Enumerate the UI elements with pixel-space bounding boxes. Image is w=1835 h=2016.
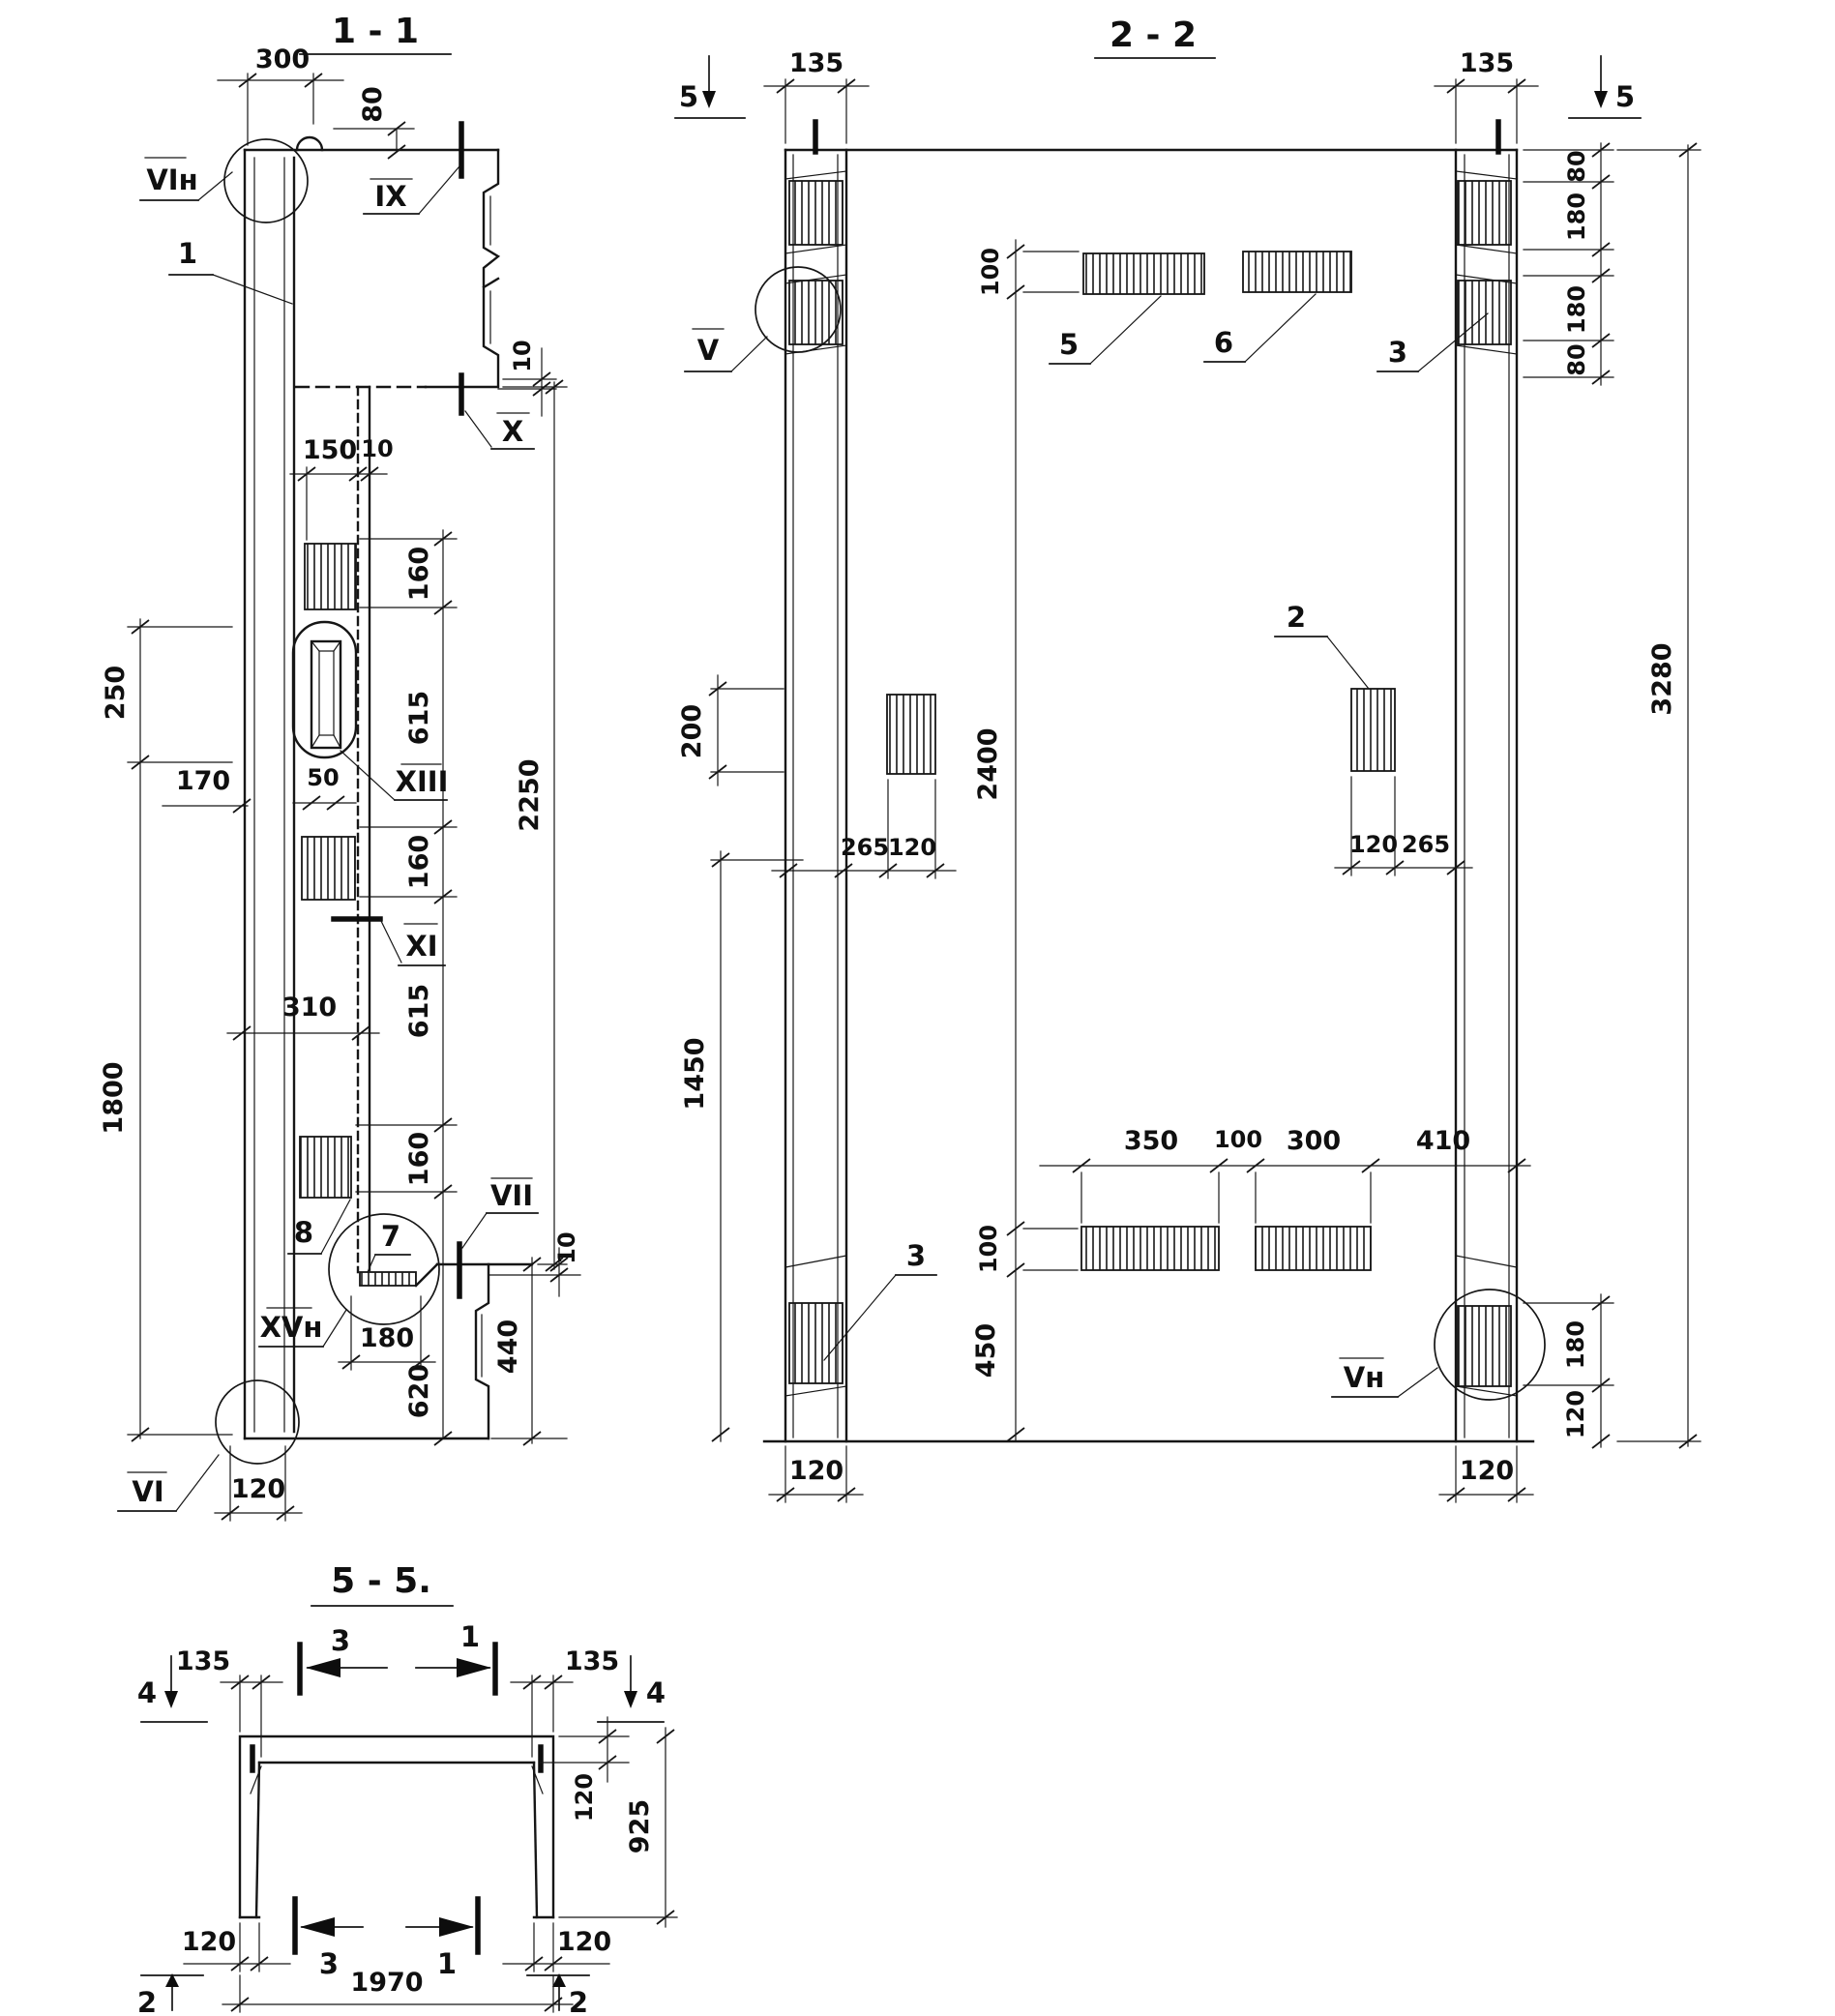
dim-1970: 1970 bbox=[222, 1968, 573, 2012]
marker-vii-label: VII bbox=[490, 1179, 533, 1212]
dim-100-label: 100 bbox=[1214, 1126, 1262, 1153]
dim-180-label: 180 bbox=[1563, 193, 1590, 241]
dim-265-label: 265 bbox=[841, 834, 889, 861]
dim-300-label: 300 bbox=[255, 44, 310, 74]
marker-vi-label: VI bbox=[132, 1475, 163, 1508]
section-1-1: 1 - 1 bbox=[99, 12, 580, 1521]
dim-160-label: 160 bbox=[404, 835, 434, 889]
dim-180-foot: 180 bbox=[339, 1296, 435, 1370]
embedded-plate-bottom-right bbox=[1256, 1227, 1371, 1270]
detail-circle-vi bbox=[216, 1380, 299, 1464]
dim-265-label: 265 bbox=[1402, 831, 1450, 858]
dim-265-120-left: 265 120 bbox=[772, 780, 956, 878]
dim-120-bottom-left: 120 bbox=[769, 1446, 863, 1502]
cut-marker-5-left: 5 bbox=[675, 56, 745, 118]
dim-120-label: 120 bbox=[231, 1474, 285, 1504]
dim-350-label: 350 bbox=[1124, 1126, 1178, 1156]
leader-8: 8 bbox=[288, 1200, 350, 1254]
dim-chain-left-1-1: 250 1800 170 bbox=[99, 619, 251, 1441]
drawing-sheet: 1 - 1 bbox=[0, 0, 1835, 2016]
cut-marker-2-left: 2 bbox=[137, 1973, 203, 2016]
leader-2-label: 2 bbox=[1287, 601, 1306, 634]
dim-135-label: 135 bbox=[565, 1646, 619, 1676]
marker-v-label: V bbox=[697, 334, 720, 367]
leader-1-label: 1 bbox=[178, 237, 197, 270]
dim-chain-center: 100 2400 100 450 bbox=[971, 240, 1079, 1441]
section-1-1-title: 1 - 1 bbox=[332, 12, 419, 51]
dim-10-head: 10 bbox=[498, 340, 556, 416]
cut-marker-1-top: 1 bbox=[416, 1620, 495, 1693]
cut-marker-2-right: 2 bbox=[527, 1973, 589, 2016]
dim-135-left-55: 135 bbox=[176, 1646, 282, 1757]
cut-marker-3-label: 3 bbox=[331, 1624, 350, 1657]
dim-chain-right-top: 80 180 180 80 bbox=[1524, 143, 1613, 385]
leader-2: 2 bbox=[1275, 601, 1369, 689]
slot-detail bbox=[293, 622, 356, 757]
dim-chain-right-1-1: 160 615 160 615 160 620 bbox=[356, 530, 457, 1445]
leader-5: 5 bbox=[1050, 296, 1161, 364]
marker-vii: VII bbox=[462, 1178, 538, 1248]
detail-7: 7 bbox=[368, 1220, 410, 1272]
leader-6-label: 6 bbox=[1214, 326, 1233, 359]
dim-10-label: 10 bbox=[553, 1231, 580, 1263]
dim-150-label: 150 bbox=[303, 435, 357, 465]
dim-80-label: 80 bbox=[1563, 343, 1590, 375]
leader-5-label: 5 bbox=[1059, 328, 1079, 361]
dim-80-label: 80 bbox=[358, 86, 388, 123]
dim-3280-label: 3280 bbox=[1647, 642, 1677, 715]
section-5-5-title: 5 - 5. bbox=[331, 1561, 431, 1601]
cut-marker-5-label: 5 bbox=[679, 80, 698, 113]
dim-250-label: 250 bbox=[101, 666, 131, 720]
cut-marker-2-label: 2 bbox=[569, 1986, 588, 2016]
dim-50-label: 50 bbox=[307, 764, 339, 791]
marker-xi: XI bbox=[380, 919, 445, 965]
dim-440-label: 440 bbox=[493, 1319, 523, 1374]
embedded-plate bbox=[302, 837, 355, 900]
lifting-hook bbox=[297, 137, 322, 150]
embedded-plate-6 bbox=[1243, 252, 1351, 292]
channel-outline bbox=[240, 1736, 553, 1917]
dim-615-label: 615 bbox=[404, 691, 434, 745]
marker-x-label: X bbox=[502, 415, 523, 448]
dim-2250: 2250 bbox=[503, 380, 567, 1271]
marker-xvn: XVн bbox=[259, 1308, 346, 1347]
dim-120-bottom-right-55: 120 bbox=[503, 1923, 611, 1972]
embedded-plate-mid-left bbox=[887, 695, 935, 774]
dim-150-10: 150 10 bbox=[290, 435, 394, 540]
dim-80-label: 80 bbox=[1563, 150, 1590, 182]
dim-120-label: 120 bbox=[888, 834, 936, 861]
dim-160-label: 160 bbox=[404, 547, 434, 601]
marker-x: X bbox=[465, 411, 534, 449]
dim-120-label: 120 bbox=[557, 1927, 611, 1957]
leader-6: 6 bbox=[1204, 294, 1316, 362]
dim-170-label: 170 bbox=[176, 766, 230, 796]
cut-marker-4-label: 4 bbox=[646, 1676, 666, 1709]
marker-ix: IX bbox=[364, 166, 459, 214]
dim-1970-label: 1970 bbox=[350, 1968, 423, 1998]
section-2-2: 2 - 2 bbox=[675, 15, 1701, 1502]
marker-vin-label: VIн bbox=[146, 163, 197, 196]
dim-180-label: 180 bbox=[1563, 285, 1590, 334]
marker-v: V bbox=[685, 329, 767, 371]
dim-310-label: 310 bbox=[282, 993, 337, 1023]
dim-50: 50 bbox=[293, 764, 356, 810]
dim-925: 925 bbox=[559, 1728, 677, 1927]
dim-120-bottom-right: 120 bbox=[1439, 1446, 1533, 1502]
dim-10-label: 10 bbox=[509, 340, 536, 371]
leader-8-label: 8 bbox=[294, 1216, 313, 1249]
embedded-plate-bottom-left bbox=[1081, 1227, 1219, 1270]
dim-135-label: 135 bbox=[1460, 48, 1514, 78]
section-2-2-title: 2 - 2 bbox=[1110, 15, 1197, 55]
embedded-plate-2 bbox=[1351, 689, 1395, 771]
cut-marker-4-label: 4 bbox=[137, 1676, 157, 1709]
leader-3-label: 3 bbox=[1388, 336, 1407, 369]
marker-xvn-label: XVн bbox=[260, 1311, 323, 1344]
dim-3280: 3280 bbox=[1617, 143, 1701, 1448]
cut-marker-3-top: 3 bbox=[300, 1624, 387, 1693]
dim-120-label: 120 bbox=[1460, 1456, 1514, 1486]
dim-300: 300 bbox=[218, 44, 343, 145]
cut-marker-1-label: 1 bbox=[460, 1620, 480, 1653]
dim-300-label: 300 bbox=[1287, 1126, 1341, 1156]
cut-marker-5-label: 5 bbox=[1615, 80, 1635, 113]
leader-3-label: 3 bbox=[906, 1239, 926, 1272]
dim-1800-label: 1800 bbox=[99, 1061, 129, 1134]
dim-200: 200 bbox=[677, 675, 784, 786]
marker-ix-label: IX bbox=[374, 180, 406, 213]
dim-180-label: 180 bbox=[360, 1323, 414, 1353]
marker-vn: Vн bbox=[1332, 1358, 1437, 1397]
marker-xiii-label: XIII bbox=[396, 765, 449, 798]
dim-120-265-right: 120 265 bbox=[1335, 777, 1472, 875]
marker-vn-label: Vн bbox=[1344, 1361, 1384, 1394]
technical-drawing: 1 - 1 bbox=[0, 0, 1835, 2016]
dim-615-label: 615 bbox=[404, 984, 434, 1038]
dim-160-label: 160 bbox=[404, 1132, 434, 1186]
dim-180-label: 180 bbox=[1562, 1320, 1589, 1369]
leader-1: 1 bbox=[169, 237, 292, 304]
marker-vi: VI bbox=[118, 1455, 219, 1511]
embedded-plate bbox=[305, 544, 356, 609]
dim-450-label: 450 bbox=[971, 1323, 1001, 1378]
embedded-plate-5 bbox=[1083, 253, 1204, 294]
dim-120-label: 120 bbox=[182, 1927, 236, 1957]
cut-marker-2-label: 2 bbox=[137, 1986, 157, 2016]
dim-120-bottom-left-55: 120 bbox=[182, 1923, 290, 1972]
dim-100-label: 100 bbox=[977, 248, 1004, 296]
dim-120-bottom-1-1: 120 bbox=[215, 1446, 302, 1521]
dim-925-label: 925 bbox=[625, 1799, 655, 1853]
dim-135-label: 135 bbox=[176, 1646, 230, 1676]
dim-10-label: 10 bbox=[361, 435, 393, 462]
dim-80-top: 80 bbox=[334, 86, 414, 159]
cut-marker-3-label: 3 bbox=[319, 1947, 339, 1980]
dim-440: 440 bbox=[491, 1258, 567, 1445]
marker-xiii: XIII bbox=[340, 751, 448, 800]
dim-120-label: 120 bbox=[1562, 1390, 1589, 1438]
dim-1450-label: 1450 bbox=[680, 1037, 710, 1110]
dim-120-label: 120 bbox=[1349, 831, 1398, 858]
marker-xi-label: XI bbox=[405, 930, 437, 963]
dim-2400-label: 2400 bbox=[973, 727, 1003, 800]
dim-200-label: 200 bbox=[677, 704, 707, 758]
detail-7-label: 7 bbox=[381, 1220, 400, 1253]
dim-2250-label: 2250 bbox=[515, 758, 545, 831]
dim-410-label: 410 bbox=[1416, 1126, 1470, 1156]
dim-120-label: 120 bbox=[789, 1456, 844, 1486]
dim-100-label: 100 bbox=[975, 1225, 1002, 1273]
dim-120-label: 120 bbox=[571, 1773, 598, 1822]
cut-marker-5-right: 5 bbox=[1569, 56, 1641, 118]
foot-bearing-strip bbox=[360, 1272, 416, 1286]
embedded-plate bbox=[300, 1137, 351, 1198]
marker-vin: VIн bbox=[140, 158, 232, 200]
dim-310: 310 bbox=[227, 993, 379, 1040]
cut-marker-1-label: 1 bbox=[437, 1947, 457, 1980]
dim-135-label: 135 bbox=[789, 48, 844, 78]
dim-135-right: 135 bbox=[1435, 48, 1538, 143]
section-5-5: 5 - 5. 3 1 4 4 bbox=[137, 1561, 677, 2016]
dim-620-label: 620 bbox=[404, 1364, 434, 1418]
